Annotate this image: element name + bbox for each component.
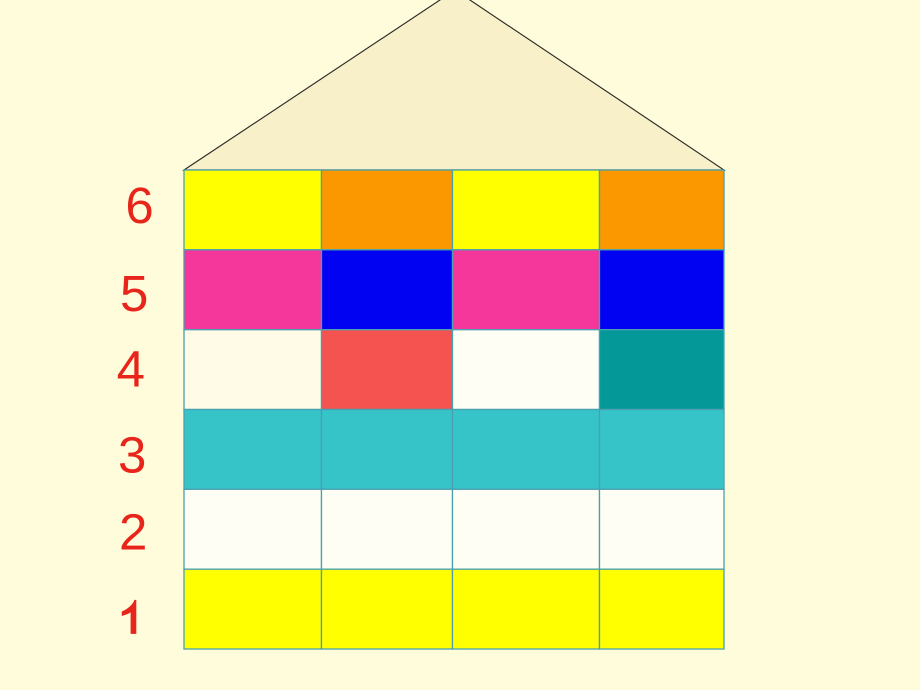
svg-text:6: 6 — [125, 177, 153, 234]
svg-text:3: 3 — [118, 427, 146, 484]
svg-text:4: 4 — [117, 341, 145, 398]
svg-text:5: 5 — [120, 265, 148, 322]
svg-text:2: 2 — [119, 503, 147, 560]
